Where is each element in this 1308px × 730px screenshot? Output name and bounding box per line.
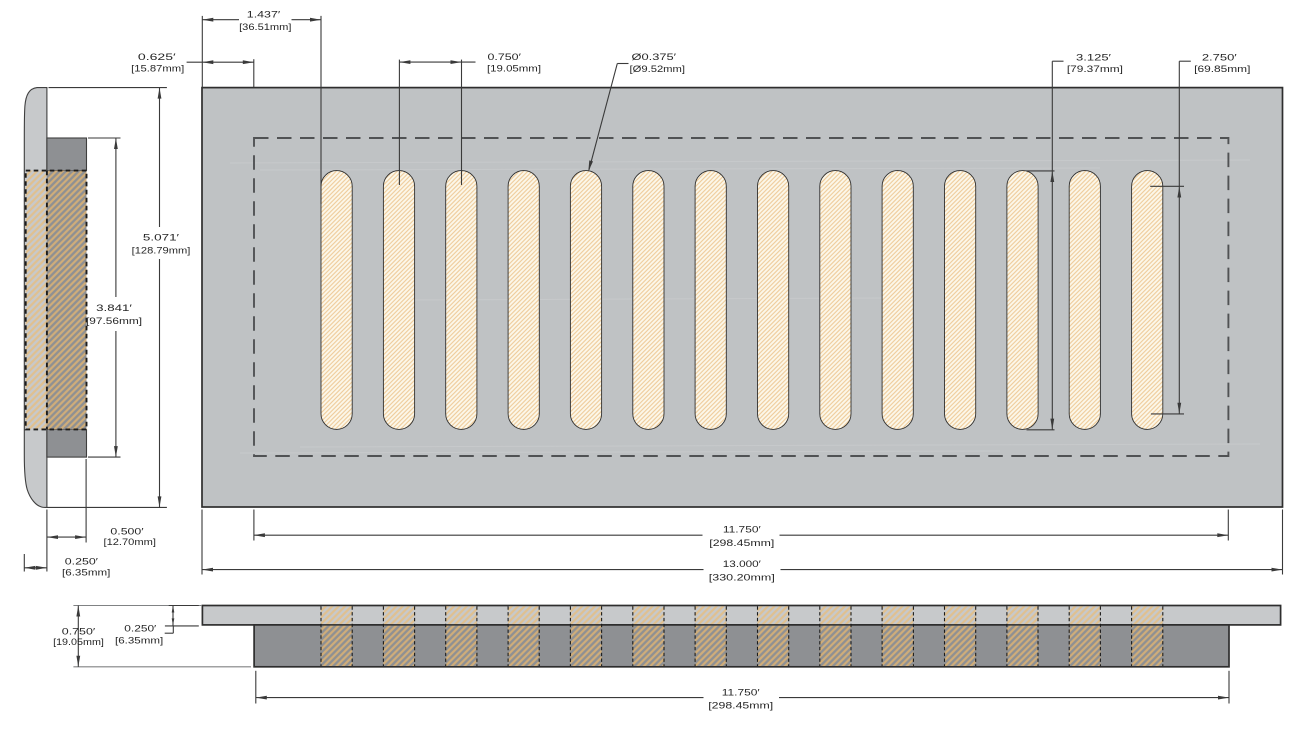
svg-text:0.250′: 0.250′ [124,624,156,634]
svg-text:0.500′: 0.500′ [110,527,143,537]
svg-text:13.000′: 13.000′ [723,559,761,569]
svg-text:[19.05mm]: [19.05mm] [487,63,541,73]
svg-text:2.750′: 2.750′ [1202,52,1237,62]
svg-text:[6.35mm]: [6.35mm] [115,636,163,646]
svg-text:[19.05mm]: [19.05mm] [53,637,104,647]
svg-text:[69.85mm]: [69.85mm] [1194,64,1250,74]
svg-text:[128.79mm]: [128.79mm] [132,245,191,255]
svg-text:0.750′: 0.750′ [62,627,96,637]
svg-text:[298.45mm]: [298.45mm] [708,700,773,710]
svg-text:3.125′: 3.125′ [1076,52,1111,62]
svg-text:[6.35mm]: [6.35mm] [62,567,110,577]
svg-text:0.625′: 0.625′ [138,52,176,62]
svg-text:[12.70mm]: [12.70mm] [104,537,156,547]
svg-text:[Ø9.52mm]: [Ø9.52mm] [630,64,686,74]
svg-text:[15.87mm]: [15.87mm] [131,63,184,73]
svg-text:0.750′: 0.750′ [488,52,522,62]
svg-text:[36.51mm]: [36.51mm] [239,22,291,32]
svg-text:[97.56mm]: [97.56mm] [86,316,142,326]
svg-text:11.750′: 11.750′ [722,687,760,697]
svg-text:[298.45mm]: [298.45mm] [709,538,774,548]
svg-text:0.250′: 0.250′ [65,556,99,566]
svg-text:11.750′: 11.750′ [723,524,761,534]
svg-text:[79.37mm]: [79.37mm] [1067,64,1123,74]
svg-text:Ø0.375′: Ø0.375′ [632,52,677,62]
svg-text:1.437′: 1.437′ [247,10,281,20]
svg-text:[330.20mm]: [330.20mm] [709,572,775,582]
svg-text:3.841′: 3.841′ [96,303,132,313]
svg-text:5.071′: 5.071′ [143,233,180,243]
